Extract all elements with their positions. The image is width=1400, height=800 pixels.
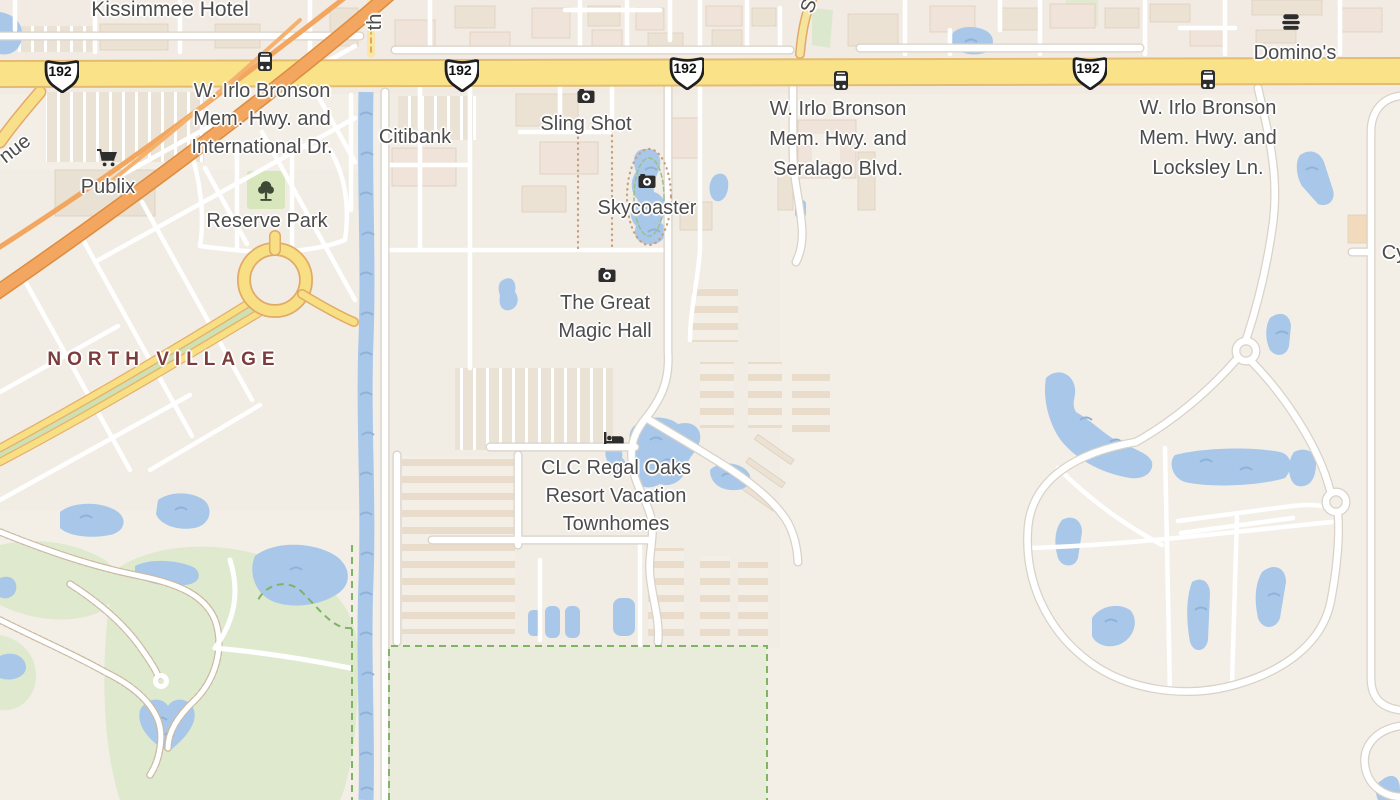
- poi-label-kissimmee-hotel: Kissimmee Hotel: [91, 0, 249, 24]
- camera-icon: [596, 266, 618, 284]
- poi-label-skycoaster: Skycoaster: [598, 194, 697, 222]
- supermarket-cart-icon: [96, 148, 118, 168]
- bus-stop-icon: [255, 50, 275, 74]
- route-number: 192: [41, 63, 79, 79]
- poi-label-citibank: Citibank: [379, 123, 451, 151]
- camera-icon: [636, 172, 658, 190]
- poi-label-dominos: Domino's: [1254, 39, 1337, 67]
- map-canvas[interactable]: 192 192 192 192 Kissimmee Hotel: [0, 0, 1400, 800]
- junction-label-irlo-locksley: W. Irlo Bronson Mem. Hwy. and Locksley L…: [1139, 93, 1276, 183]
- poi-label-publix: Publix: [81, 173, 135, 201]
- poi-label-clc-regal-oaks: CLC Regal Oaks Resort Vacation Townhomes: [541, 454, 691, 538]
- camera-icon: [575, 87, 597, 105]
- us-route-shield: 192: [441, 58, 479, 92]
- us-route-shield: 192: [666, 56, 704, 90]
- route-number: 192: [666, 60, 704, 76]
- poi-label-great-magic-hall: The Great Magic Hall: [558, 289, 651, 345]
- us-route-shield: 192: [1069, 56, 1107, 90]
- junction-label-irlo-international: W. Irlo Bronson Mem. Hwy. and Internatio…: [191, 77, 332, 161]
- junction-label-irlo-seralago: W. Irlo Bronson Mem. Hwy. and Seralago B…: [769, 94, 906, 184]
- route-number: 192: [1069, 60, 1107, 76]
- district-label-north-village: NORTH VILLAGE: [47, 346, 280, 374]
- park-tree-icon: [255, 180, 277, 203]
- poi-label-sling-shot: Sling Shot: [540, 110, 631, 138]
- bus-stop-icon: [1198, 68, 1218, 92]
- route-number: 192: [441, 62, 479, 78]
- fast-food-icon: [1280, 13, 1302, 31]
- lodging-icon: [603, 430, 625, 446]
- street-label-cy-fragment: Cy: [1382, 239, 1400, 267]
- us-route-shield: 192: [41, 59, 79, 93]
- bus-stop-icon: [831, 69, 851, 93]
- poi-label-reserve-park: Reserve Park: [206, 207, 327, 235]
- street-label-th-fragment: th: [361, 14, 389, 31]
